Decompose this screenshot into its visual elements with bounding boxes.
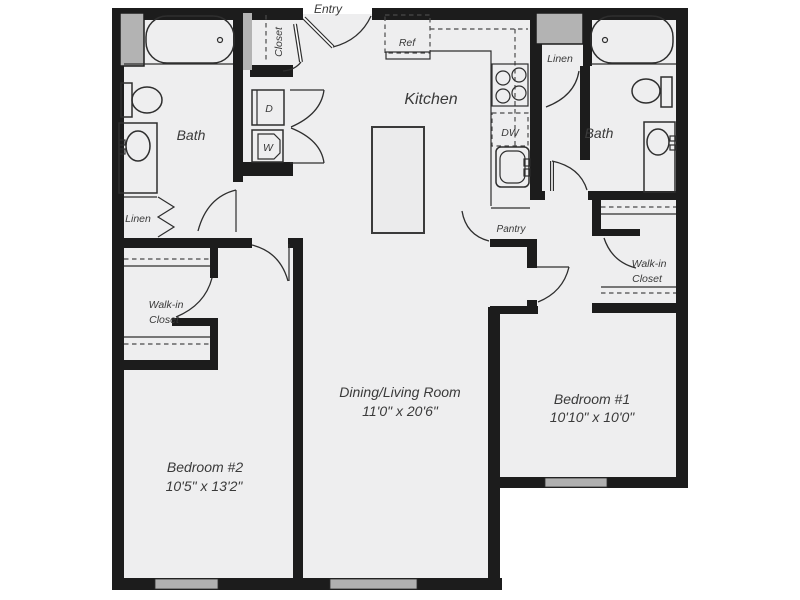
wall-segment	[490, 239, 530, 247]
chase-block	[120, 13, 144, 66]
wall-segment	[112, 360, 218, 370]
wic2-label-line2: Closet	[632, 273, 663, 285]
wall-segment	[592, 199, 601, 231]
wall-segment	[288, 238, 303, 248]
bedroom2-label: Bedroom #2	[167, 459, 243, 475]
wall-segment	[243, 162, 293, 176]
bath1-label: Bath	[177, 127, 206, 143]
wall-segment	[490, 306, 538, 314]
wall-segment	[210, 326, 218, 360]
wall-segment	[592, 303, 688, 313]
wall-segment	[530, 191, 545, 200]
chase-strip	[243, 13, 252, 70]
window	[545, 478, 607, 487]
wic1-label-line2: Closet	[149, 314, 180, 326]
chase-block	[536, 13, 583, 44]
bedroom2-dimensions: 10'5" x 13'2"	[166, 478, 244, 494]
wall-segment	[592, 229, 640, 236]
linen1-label: Linen	[125, 213, 151, 225]
bath2-label: Bath	[585, 125, 614, 141]
wall-segment	[676, 8, 688, 488]
entry-label: Entry	[314, 2, 343, 16]
wall-segment	[172, 318, 218, 326]
wall-segment	[112, 238, 252, 248]
wall-segment	[580, 66, 590, 160]
floor-area	[118, 14, 682, 584]
wall-segment	[112, 8, 124, 590]
linen2-label: Linen	[547, 53, 573, 65]
kitchen-label: Kitchen	[404, 91, 457, 108]
pantry-label: Pantry	[497, 224, 527, 235]
washer-label: W	[263, 142, 274, 154]
living-room-label: Dining/Living Room	[339, 384, 461, 400]
kitchen-island	[372, 127, 424, 233]
window	[155, 579, 218, 589]
floor-plan-canvas: Entry Closet Ref Kitchen Linen Bath Bath…	[0, 0, 800, 600]
refrigerator-label: Ref	[399, 37, 416, 49]
living-room-dimensions: 11'0" x 20'6"	[362, 403, 439, 419]
wic2-label-line1: Walk-in	[632, 258, 667, 270]
dryer-label: D	[265, 103, 273, 115]
wall-segment	[488, 307, 500, 590]
wall-segment	[293, 238, 303, 590]
bedroom1-dimensions: 10'10" x 10'0"	[550, 409, 636, 425]
window	[330, 579, 417, 589]
bedroom1-label: Bedroom #1	[554, 391, 630, 407]
floor-plan-page: Entry Closet Ref Kitchen Linen Bath Bath…	[0, 0, 800, 600]
wall-segment	[210, 248, 218, 278]
dishwasher-label: DW	[501, 127, 520, 139]
wic1-label-line1: Walk-in	[149, 299, 184, 311]
entry-closet-label: Closet	[273, 26, 285, 57]
